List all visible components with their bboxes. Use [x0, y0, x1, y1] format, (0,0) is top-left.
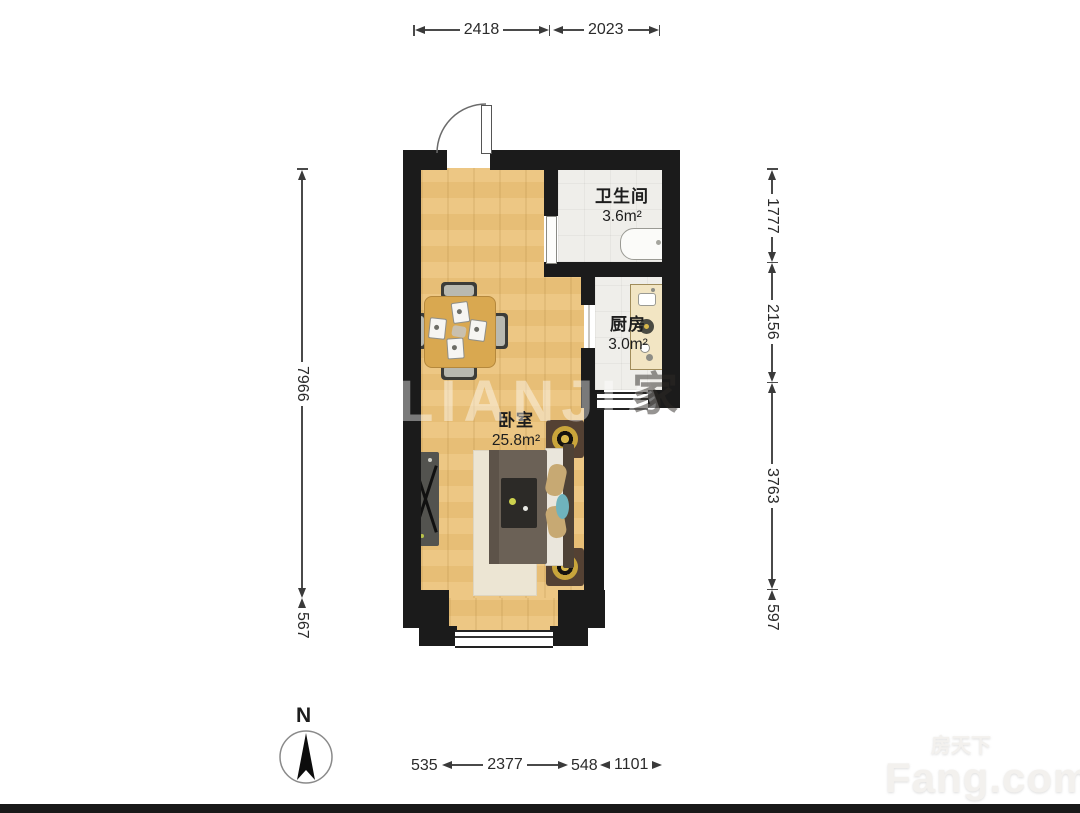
wall-segment: [581, 277, 595, 305]
bay-window: [455, 630, 553, 648]
brand-en-text: Fang.com: [885, 756, 1080, 800]
bed-tray: [501, 478, 537, 528]
dimension-right-1: 1777: [763, 168, 781, 263]
tray-item: [509, 498, 516, 505]
dimension-bottom-2: 2377: [442, 757, 568, 773]
throw-cushion: [556, 494, 569, 519]
dimension-bottom-1: 535: [407, 757, 442, 775]
floor-plan-canvas: 卫生间 3.6m² 厨房 3.0m² 卧室 25.8m² 2418 2023 7…: [0, 0, 1080, 813]
brand-watermark: 房天下 Fang.com: [885, 736, 1080, 800]
wall-segment: [544, 168, 558, 216]
dimension-value: 3763: [763, 464, 781, 508]
blanket-fold: [489, 450, 499, 564]
dimension-value: 2418: [460, 21, 504, 39]
dimension-value: 2156: [763, 300, 781, 344]
dimension-value: 1777: [763, 194, 781, 238]
bedroom-label: 卧室 25.8m²: [476, 406, 556, 450]
room-name: 卫生间: [595, 182, 649, 207]
bottom-edge-bar: [0, 804, 1080, 813]
dimension-value: 2023: [584, 21, 628, 39]
dimension-right-2: 2156: [763, 263, 781, 383]
tray-item: [523, 506, 528, 511]
place-setting: [451, 301, 471, 324]
faucet-icon: [651, 288, 655, 292]
room-area: 3.0m²: [608, 336, 648, 354]
dimension-value: 567: [293, 608, 311, 643]
wall-segment: [648, 390, 680, 408]
wall-segment: [403, 590, 449, 628]
room-name: 厨房: [610, 310, 646, 335]
wall-segment: [584, 390, 604, 598]
dimension-bottom-3: 548: [567, 757, 602, 775]
place-setting: [428, 317, 447, 340]
bathtub: [620, 228, 666, 260]
dimension-left-2: 567: [293, 598, 311, 644]
room-area: 25.8m²: [492, 432, 540, 450]
wall-segment: [581, 348, 595, 392]
place-setting: [446, 337, 464, 359]
wall-segment: [558, 590, 605, 628]
dimension-top-1: 2418: [413, 22, 550, 38]
dimension-right-3: 3763: [763, 383, 781, 590]
dimension-value: 2377: [483, 756, 527, 774]
dimension-value: 597: [763, 600, 781, 635]
table-centerpiece: [451, 325, 467, 338]
cooktop-knob-icon: [646, 354, 653, 361]
place-setting: [468, 319, 488, 342]
wall-segment: [550, 626, 588, 646]
indicator-dot: [428, 458, 432, 462]
sink-icon: [638, 293, 656, 306]
kitchen-label: 厨房 3.0m²: [592, 310, 664, 354]
room-name: 卧室: [498, 406, 534, 431]
dimension-bottom-4: 1101: [600, 757, 660, 773]
dimension-value: 7966: [293, 362, 311, 406]
wall-segment: [419, 626, 457, 646]
compass-north-label: N: [296, 704, 311, 728]
wall-segment: [544, 262, 680, 277]
bay-window-floor: [449, 598, 558, 632]
bathroom-door-leaf: [546, 216, 557, 264]
wall-segment: [403, 168, 421, 598]
room-area: 3.6m²: [602, 208, 642, 226]
dimension-value: 1101: [610, 756, 652, 774]
compass-icon: [278, 728, 334, 786]
wall-segment: [490, 150, 680, 170]
dimension-top-2: 2023: [553, 22, 660, 38]
kitchen-window: [597, 392, 648, 410]
kitchen-doorway-line: [588, 305, 590, 348]
bathroom-label: 卫生间 3.6m²: [578, 182, 666, 226]
dimension-left-1: 7966: [293, 168, 311, 598]
brand-cn-text: 房天下: [931, 736, 1080, 756]
faucet-icon: [656, 240, 661, 245]
dimension-right-4: 597: [763, 590, 781, 645]
entry-door-leaf: [481, 105, 492, 154]
